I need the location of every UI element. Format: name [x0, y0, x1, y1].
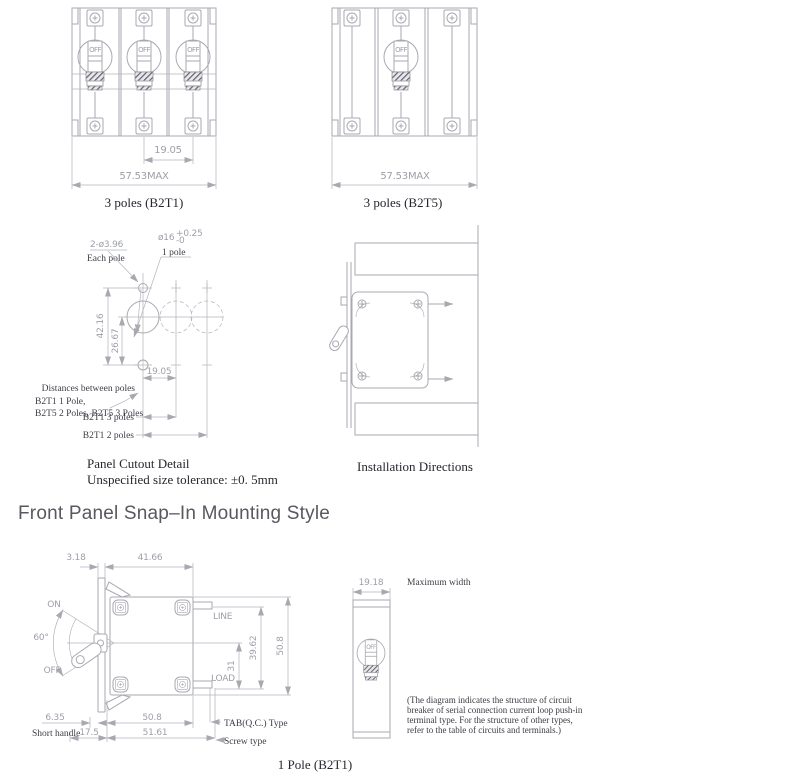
callout-bore-tol-minus: -0: [176, 236, 185, 246]
pole-3: [176, 10, 210, 134]
dim-41-66: 41.66: [138, 553, 163, 563]
snap-clip-bottom: [106, 695, 130, 710]
dim-19-18: 19.18: [359, 578, 384, 588]
page-title: Front Panel Snap–In Mounting Style: [18, 503, 330, 525]
screw-icon: [344, 118, 360, 134]
callout-bore-dia: ø16: [158, 233, 175, 243]
screw-icon: [185, 10, 201, 26]
screw-icon: [344, 10, 360, 26]
label-distances: Distances between poles: [42, 384, 136, 394]
panel-section-bottom: [355, 403, 478, 435]
screw-icon: [178, 680, 188, 690]
dim-pole-spacing: 19.05: [154, 145, 182, 156]
pole-1: [344, 10, 360, 134]
toggle-icon: [384, 40, 418, 90]
caption-3pole-b2t1: 3 poles (B2T1): [105, 195, 184, 210]
screw-icon: [87, 118, 103, 134]
label-load: LOAD: [211, 674, 235, 684]
label-3-poles: B2T1 3 poles: [83, 413, 134, 423]
label-short-handle: Short handle: [32, 729, 80, 739]
dim-17-5: 17.5: [79, 728, 98, 738]
dim-50-8-bottom: 50.8: [142, 713, 162, 723]
screw-icon: [393, 118, 409, 134]
screw-icon: [136, 118, 152, 134]
toggle-icon: [176, 40, 210, 90]
screw-icon: [178, 603, 188, 613]
structure-note: (The diagram indicates the structure of …: [407, 695, 677, 735]
label-screw-type: Screw type: [224, 737, 266, 747]
caption-3pole-b2t5: 3 poles (B2T5): [364, 195, 443, 210]
callout-hole-dia: 2-ø3.96: [90, 240, 124, 250]
snap-clip-top: [106, 582, 130, 597]
drawing-3pole-b2t1: 19.05 57.53MAX 3 poles (B2T1): [72, 8, 216, 210]
label-line: LINE: [213, 612, 233, 622]
screw-icon: [116, 680, 126, 690]
dim-max-width: 57.53MAX: [119, 171, 169, 182]
dim-3-18: 3.18: [66, 553, 86, 563]
panel-section-top: [355, 243, 478, 275]
label-off: OFF: [44, 666, 61, 676]
datasheet-page: OFF: [0, 0, 800, 784]
pole-3: [444, 10, 460, 134]
label-tab-type: TAB(Q.C.) Type: [224, 718, 288, 729]
label-max-width: Maximum width: [407, 578, 471, 588]
caption-tolerance: Unspecified size tolerance: ±0. 5mm: [87, 472, 278, 487]
screw-icon: [185, 118, 201, 134]
screw-icon: [87, 10, 103, 26]
dim-51-61: 51.61: [143, 728, 168, 738]
terminal-line: [193, 602, 212, 609]
dim-max-width: 57.53MAX: [380, 171, 430, 182]
note-line: terminal type. For the structure of othe…: [407, 715, 677, 725]
callout-bore-note: 1 pole: [162, 248, 185, 258]
label-on: ON: [47, 600, 60, 610]
dim-19-05: 19.05: [147, 367, 172, 377]
toggle-icon: [78, 40, 112, 90]
drawing-panel-cutout: 2-ø3.96 Each pole ø16 +0.25 -0 1 pole 42…: [35, 229, 278, 487]
screw-icon: [136, 10, 152, 26]
caption-1pole: 1 Pole (B2T1): [278, 757, 352, 772]
breaker-body-side: [352, 292, 428, 388]
pole-2: [384, 10, 418, 134]
label-2-poles: B2T1 2 poles: [83, 431, 134, 441]
pole-1: [78, 10, 112, 134]
label-models-1: B2T1 1 Pole,: [35, 397, 85, 407]
note-line: (The diagram indicates the structure of …: [407, 695, 677, 705]
dim-6-35: 6.35: [45, 713, 64, 723]
pole-2: [127, 10, 161, 134]
dim-42-16: 42.16: [96, 313, 106, 338]
caption-installation: Installation Directions: [357, 459, 473, 474]
drawing-installation: Installation Directions: [328, 225, 478, 474]
screw-icon: [444, 10, 460, 26]
screw-icon: [393, 10, 409, 26]
note-line: refer to the table of circuits and termi…: [407, 725, 677, 735]
label-60deg: 60°: [33, 633, 48, 643]
screw-icon: [116, 603, 126, 613]
dim-26-67: 26.67: [111, 329, 121, 354]
screw-icon: [444, 118, 460, 134]
caption-panel-cutout: Panel Cutout Detail: [87, 456, 190, 471]
dim-50-8-height: 50.8: [276, 636, 286, 656]
drawing-3pole-b2t5: 57.53MAX 3 poles (B2T5): [332, 8, 477, 210]
technical-drawing-canvas: OFF: [0, 0, 800, 784]
note-line: breaker of serial connection current loo…: [407, 705, 677, 715]
toggle-icon: [127, 40, 161, 90]
dim-31: 31: [227, 660, 237, 671]
drawing-1pole-side: ON 60° OFF LINE LOAD 3.18 41.66 31 39.62…: [32, 553, 352, 772]
terminal-load: [193, 681, 212, 688]
dim-39-62: 39.62: [249, 636, 259, 661]
